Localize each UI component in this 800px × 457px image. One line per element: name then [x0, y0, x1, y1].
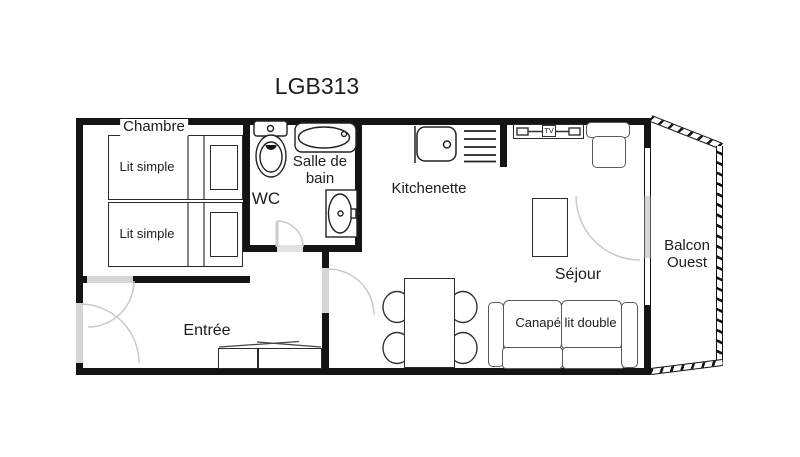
wardrobe-left — [218, 348, 258, 369]
kitchen-sink — [415, 126, 456, 163]
wall-entree-sejour-bottom — [322, 313, 329, 375]
wall-bathroom-bottom-right — [303, 245, 362, 252]
sejour-door-panel — [322, 268, 329, 313]
wall-bottom — [76, 368, 651, 375]
chambre-door-panel — [87, 276, 133, 283]
room-label-wc: WC — [252, 190, 280, 209]
pillow-bed-2 — [210, 212, 238, 257]
wall-bathroom-right — [355, 118, 362, 252]
bathroom-door-threshold — [277, 245, 303, 252]
wall-right-bottom — [644, 305, 651, 375]
balcony-door-panel — [644, 196, 651, 258]
tv-label: TV — [544, 126, 554, 135]
wall-bathroom-bottom-left — [243, 245, 277, 252]
plan-title: LGB313 — [275, 74, 359, 99]
wall-right-top — [644, 118, 651, 148]
entrance-door-panel — [76, 303, 83, 363]
bathroom-door-arc — [277, 221, 303, 247]
sofa-armrest-right — [621, 302, 638, 368]
balcony-rail-top — [650, 115, 723, 149]
balcony-door-arc — [576, 196, 640, 260]
room-label-kitchenette: Kitchenette — [391, 181, 466, 198]
sofa-seat-cushion-2 — [562, 347, 625, 369]
balcony-rail-bottom — [651, 359, 723, 375]
label-lit-simple-1: Lit simple — [120, 160, 175, 174]
side-table — [532, 198, 568, 257]
drainer-lines — [464, 131, 496, 162]
armchair-seat — [592, 136, 626, 168]
wall-entree-sejour-top — [322, 252, 329, 268]
label-lit-simple-2: Lit simple — [120, 227, 175, 241]
wall-chambre-bottom-right — [133, 276, 250, 283]
wardrobe-doors — [219, 342, 321, 348]
room-label-sejour: Séjour — [555, 266, 601, 284]
wall-chambre-bottom-left — [76, 276, 87, 283]
window-right-lower — [644, 258, 651, 305]
room-label-chambre: Chambre — [120, 119, 188, 136]
sejour-door-arc — [328, 269, 374, 315]
room-label-salle-de-bain: Salle de bain — [286, 154, 354, 187]
floor-plan: TV LGB313 Chambre WC Salle de bain Kitch… — [0, 0, 800, 457]
sofa-seat-cushion-1 — [502, 347, 563, 369]
tv-label-box: TV — [542, 125, 556, 137]
wall-chambre-right — [243, 118, 250, 252]
entrance-door-arc — [80, 304, 139, 363]
dining-table — [404, 278, 455, 368]
toilet — [254, 121, 287, 177]
room-label-entree: Entrée — [183, 322, 230, 340]
pillow-bed-1 — [210, 145, 238, 190]
window-right-upper — [644, 148, 651, 196]
chambre-door-arc — [88, 281, 134, 327]
wall-kitchen-stub — [500, 121, 507, 167]
wardrobe-right — [258, 348, 322, 369]
room-label-balcon: Balcon Ouest — [656, 238, 718, 271]
label-canape: Canapé lit double — [515, 316, 616, 330]
bathtub — [295, 123, 356, 152]
